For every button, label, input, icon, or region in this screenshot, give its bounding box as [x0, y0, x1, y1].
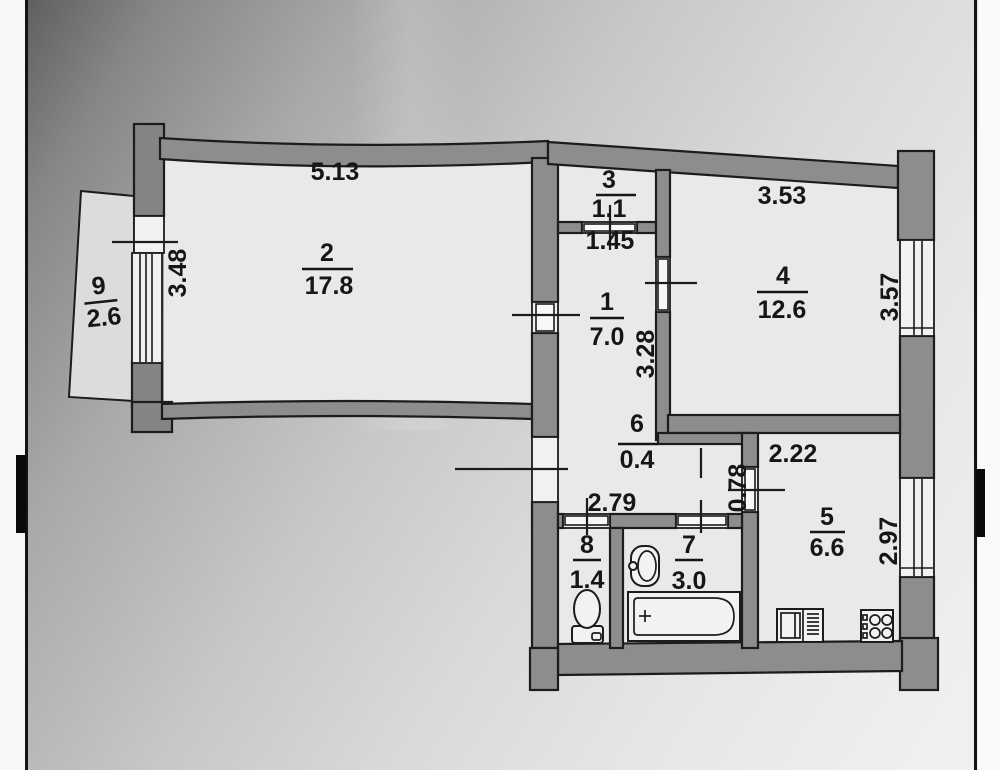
left-edge-line	[25, 0, 28, 770]
kitchen-sink-icon	[777, 609, 823, 642]
room-number: 5	[820, 503, 834, 531]
window-room4-right	[900, 240, 934, 336]
room-number: 9	[90, 271, 107, 300]
wall-niche	[658, 433, 752, 444]
wall-top-right-pillar	[898, 151, 934, 240]
room-area: 17.8	[305, 272, 354, 300]
room-number: 2	[320, 239, 334, 267]
room-area: 1.1	[592, 195, 627, 223]
wall-room4-bottom	[668, 415, 900, 433]
stove-icon	[861, 610, 893, 642]
wall-room1-room4-upper	[656, 170, 670, 257]
window-room2-left	[132, 253, 162, 363]
room-area: 7.0	[590, 323, 625, 351]
wall-hall-left-mid	[532, 333, 558, 437]
left-margin	[0, 0, 25, 770]
dim-kitchen-door: 0.78	[724, 464, 752, 513]
toilet-icon	[572, 590, 603, 643]
balcony-door-opening	[134, 216, 164, 253]
wall-room2-bottom	[162, 401, 532, 419]
room-number: 7	[682, 531, 696, 559]
room-area: 0.4	[620, 446, 655, 474]
floor-plan: 2 17.8 5.13 3.48 9 2.6 3 1.1 1.45 1 7.0 …	[0, 0, 1000, 770]
wall-room3-bottom-left	[558, 222, 582, 233]
dim-room4-top: 3.53	[758, 182, 807, 210]
room-number: 3	[602, 166, 616, 194]
dim-room1-right: 3.28	[632, 330, 660, 379]
wall-right-mid	[900, 336, 934, 478]
wall-room8-room7	[610, 528, 623, 648]
wall-bottom-left-pillar	[530, 648, 558, 690]
door-room4	[656, 257, 670, 312]
dim-room4-right: 3.57	[876, 273, 904, 322]
wall-hall-left-lower	[532, 502, 558, 648]
wall-kitchen-left-stub	[742, 433, 758, 467]
room-area: 2.6	[85, 302, 123, 333]
bathtub-icon	[628, 592, 740, 641]
dim-kitchen-right: 2.97	[875, 517, 903, 566]
dim-room2-top: 5.13	[311, 158, 360, 186]
floor-plan-photo: 2 17.8 5.13 3.48 9 2.6 3 1.1 1.45 1 7.0 …	[0, 0, 1000, 770]
wall-kitchen-left	[742, 512, 758, 648]
right-margin	[978, 0, 1000, 770]
wall-hall-left-upper	[532, 158, 558, 302]
right-clip-tab	[976, 469, 985, 537]
room-number: 8	[580, 531, 594, 559]
wall-room3-bottom-right	[637, 222, 656, 233]
wall-bottom-right-pillar	[900, 638, 938, 690]
right-edge-line	[974, 0, 977, 770]
room-area: 12.6	[758, 296, 807, 324]
wall-left-lower-pillar	[132, 362, 162, 407]
sink-icon	[629, 546, 659, 586]
room-number: 6	[630, 410, 644, 438]
room-area: 3.0	[672, 567, 707, 595]
dim-room2-left: 3.48	[164, 249, 192, 298]
window-room5-right	[900, 478, 934, 577]
room-number: 4	[776, 262, 790, 290]
left-clip-tab	[16, 455, 26, 533]
dim-room3-door: 1.45	[586, 227, 635, 255]
door-room2	[532, 302, 558, 333]
dim-hall-bottom: 2.79	[588, 489, 637, 517]
room-area: 1.4	[570, 566, 605, 594]
room-number: 1	[600, 288, 614, 316]
wall-bath-top-right	[728, 514, 742, 528]
wall-right-lower	[900, 577, 934, 640]
room-area: 6.6	[810, 534, 845, 562]
dim-kitchen-top: 2.22	[769, 440, 818, 468]
